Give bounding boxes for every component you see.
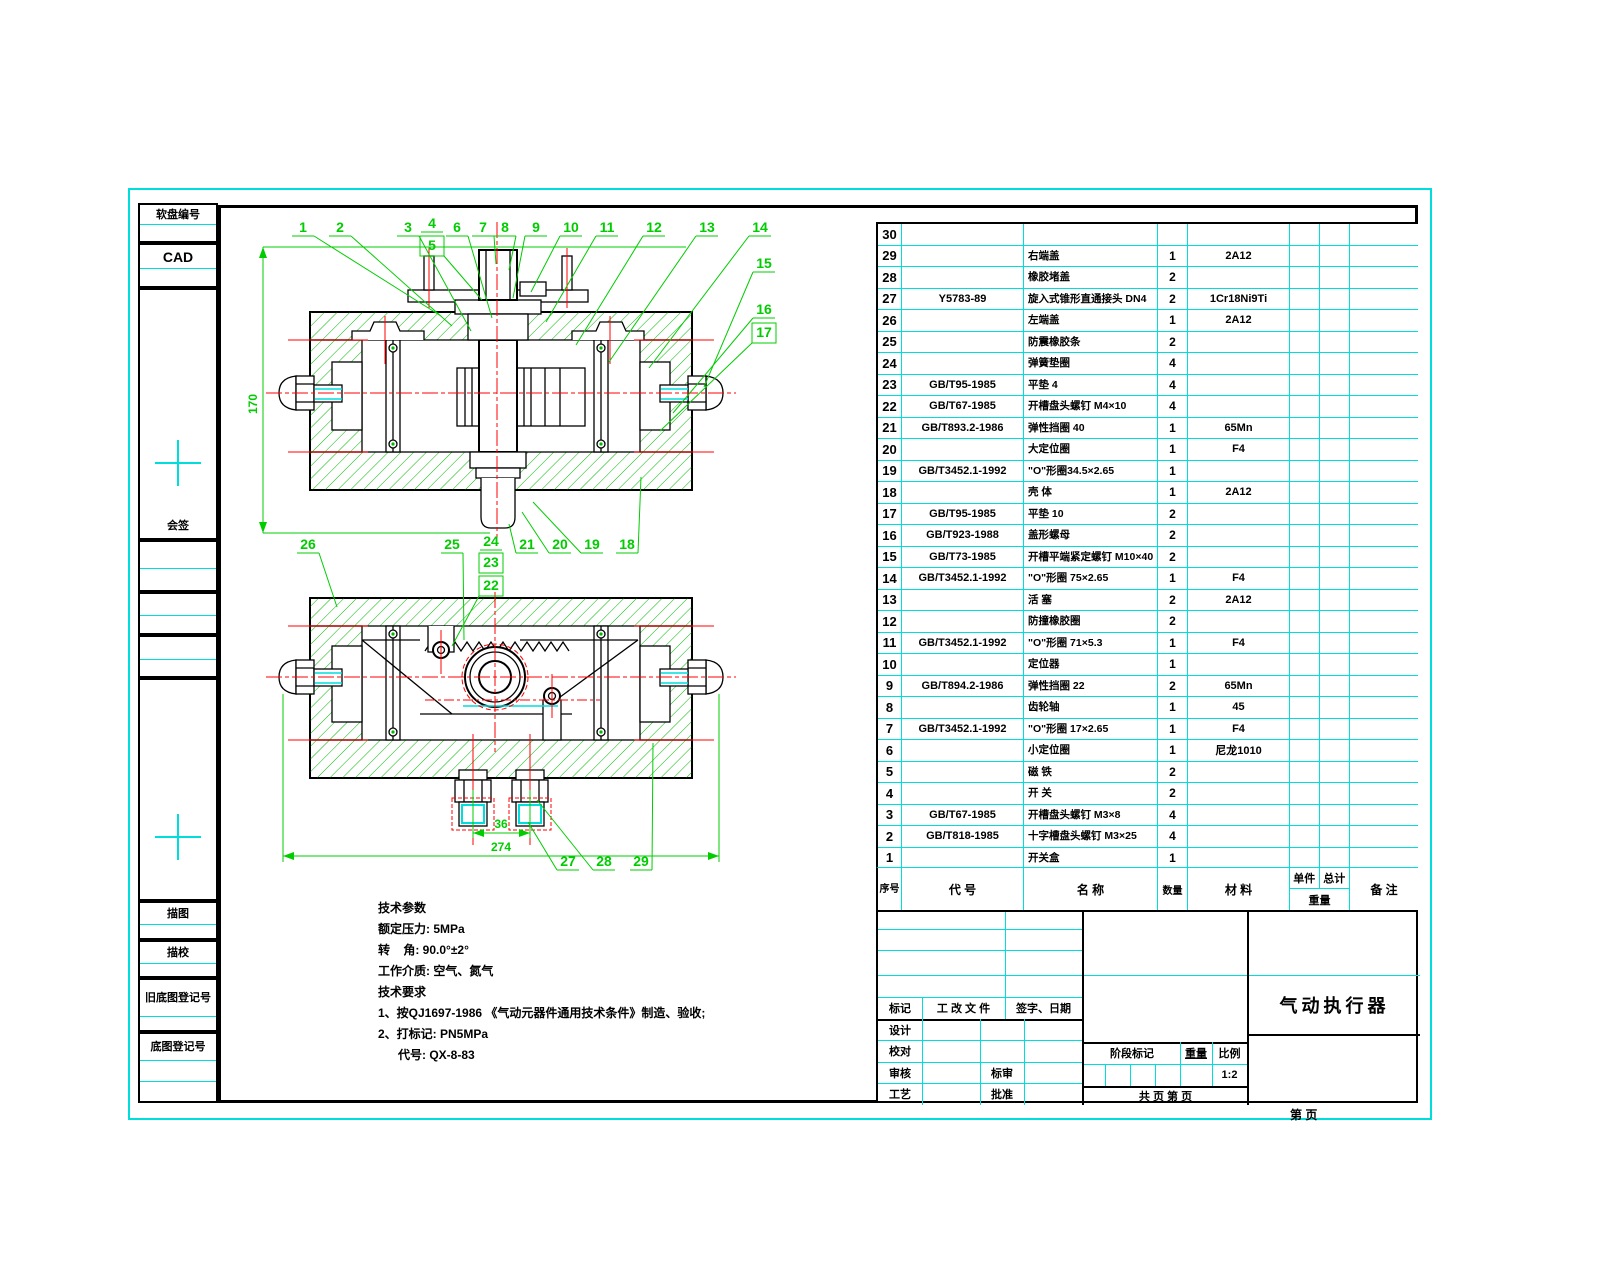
table-row: 21GB/T893.2-1986弹性挡圈 40165Mn <box>878 418 1418 440</box>
table-cell <box>902 332 1024 353</box>
callout-number: 19 <box>584 536 600 552</box>
table-cell <box>1350 590 1418 611</box>
weight-label: 重量 <box>1180 1042 1212 1064</box>
table-cell <box>1350 805 1418 826</box>
table-cell: 活 塞 <box>1024 590 1158 611</box>
table-cell <box>1320 547 1350 568</box>
table-cell <box>1350 246 1418 267</box>
callout-number: 20 <box>552 536 568 552</box>
role-review-label: 审核 <box>878 1062 922 1083</box>
table-cell <box>1188 353 1290 374</box>
scale-label: 比例 <box>1212 1042 1247 1064</box>
tech-param-line: 转 角: 90.0°±2° <box>378 940 688 961</box>
table-cell <box>1320 848 1350 869</box>
table-cell: 11 <box>878 633 902 654</box>
tech-req-line: 2、打标记: PN5MPa <box>378 1024 688 1045</box>
table-cell: GB/T3452.1-1992 <box>902 633 1024 654</box>
table-cell: 小定位圈 <box>1024 740 1158 761</box>
table-cell: 齿轮轴 <box>1024 697 1158 718</box>
table-row: 5磁 铁2 <box>878 762 1418 784</box>
table-cell: "O"形圈34.5×2.65 <box>1024 461 1158 482</box>
table-cell <box>902 590 1024 611</box>
table-cell <box>1350 332 1418 353</box>
table-cell <box>1350 826 1418 847</box>
stage-mark-label: 阶段标记 <box>1084 1042 1180 1064</box>
table-cell: 6 <box>878 740 902 761</box>
sidebar-box-tracing: 描图 <box>138 901 218 940</box>
table-cell: 壳 体 <box>1024 482 1158 503</box>
table-cell <box>1320 805 1350 826</box>
table-cell <box>1290 353 1320 374</box>
table-cell: 1 <box>1158 418 1188 439</box>
table-cell: GB/T67-1985 <box>902 805 1024 826</box>
callout-27: 27 <box>528 822 579 870</box>
table-cell <box>1320 762 1350 783</box>
table-row: 27Y5783-89旋入式锥形直通接头 DN421Cr18Ni9Ti <box>878 289 1418 311</box>
table-cell: 8 <box>878 697 902 718</box>
table-cell <box>1320 611 1350 632</box>
table-cell <box>1290 224 1320 245</box>
table-cell <box>902 482 1024 503</box>
table-cell: 2 <box>1158 289 1188 310</box>
sidebar-box-base-reg: 底图登记号 <box>138 1032 218 1103</box>
table-cell: 4 <box>1158 805 1188 826</box>
table-cell <box>1290 547 1320 568</box>
header-weight-total: 总计 <box>1320 868 1349 888</box>
table-cell <box>1188 224 1290 245</box>
table-cell: 1 <box>1158 697 1188 718</box>
table-cell: 大定位圈 <box>1024 439 1158 460</box>
callout-number: 28 <box>596 853 612 869</box>
callout-number: 16 <box>756 301 772 317</box>
table-cell <box>1290 246 1320 267</box>
table-cell <box>1290 375 1320 396</box>
table-cell <box>1290 654 1320 675</box>
table-cell <box>1350 396 1418 417</box>
callout-number: 2 <box>336 219 344 235</box>
sidebar-label: 会签 <box>140 518 216 534</box>
table-row: 13活 塞22A12 <box>878 590 1418 612</box>
table-cell <box>1290 396 1320 417</box>
callout-number: 24 <box>483 533 499 549</box>
table-cell: 橡胶堵盖 <box>1024 267 1158 288</box>
table-cell: 2 <box>1158 611 1188 632</box>
table-cell: 平垫 10 <box>1024 504 1158 525</box>
table-row: 19GB/T3452.1-1992"O"形圈34.5×2.651 <box>878 461 1418 483</box>
callout-number: 6 <box>453 219 461 235</box>
table-row: 24弹簧垫圈4 <box>878 353 1418 375</box>
table-cell: 26 <box>878 310 902 331</box>
table-cell <box>1320 267 1350 288</box>
table-cell: 2A12 <box>1188 246 1290 267</box>
table-cell <box>1320 461 1350 482</box>
table-cell: 2 <box>1158 762 1188 783</box>
register-cross-icon <box>177 814 179 860</box>
table-cell: 1 <box>1158 482 1188 503</box>
callout-21: 21 <box>509 524 538 553</box>
table-cell <box>1290 611 1320 632</box>
title-block: 标记 工 改 文 件 签字、日期 设计 校对 审核 工艺 标审 批准 阶段标记 … <box>876 910 1418 1103</box>
callout-number: 25 <box>444 536 460 552</box>
callout-number: 14 <box>752 219 768 235</box>
table-cell <box>1290 762 1320 783</box>
sidebar-box-old-base-reg: 旧底图登记号 <box>138 978 218 1032</box>
table-row: 9GB/T894.2-1986弹性挡圈 22265Mn <box>878 676 1418 698</box>
table-cell: 7 <box>878 719 902 740</box>
revision-doc-label: 工 改 文 件 <box>922 997 1005 1019</box>
table-cell <box>1290 697 1320 718</box>
table-cell <box>1350 762 1418 783</box>
callout-11: 11 <box>546 219 618 322</box>
table-cell: GB/T3452.1-1992 <box>902 568 1024 589</box>
table-cell: 平垫 4 <box>1024 375 1158 396</box>
table-cell <box>1290 310 1320 331</box>
table-cell <box>1188 461 1290 482</box>
header-remark: 备 注 <box>1350 868 1418 910</box>
callout-number: 17 <box>756 324 772 340</box>
table-cell <box>1320 246 1350 267</box>
table-cell <box>1188 848 1290 869</box>
table-cell: 65Mn <box>1188 676 1290 697</box>
table-cell: 2 <box>1158 332 1188 353</box>
table-cell: 2A12 <box>1188 310 1290 331</box>
table-row: 1开关盒1 <box>878 848 1418 870</box>
table-row: 6小定位圈1尼龙1010 <box>878 740 1418 762</box>
table-cell <box>1290 418 1320 439</box>
table-cell <box>1188 375 1290 396</box>
table-cell <box>1350 310 1418 331</box>
table-cell: 24 <box>878 353 902 374</box>
table-cell: 开 关 <box>1024 783 1158 804</box>
table-cell: 2 <box>1158 267 1188 288</box>
revision-sign-label: 签字、日期 <box>1005 997 1082 1019</box>
table-cell: 20 <box>878 439 902 460</box>
role-check-label: 校对 <box>878 1040 922 1062</box>
table-cell <box>902 267 1024 288</box>
table-cell <box>1320 418 1350 439</box>
tech-param-line: 额定压力: 5MPa <box>378 919 688 940</box>
table-cell <box>1290 332 1320 353</box>
table-cell: F4 <box>1188 568 1290 589</box>
table-cell <box>1320 826 1350 847</box>
table-row: 3GB/T67-1985开槽盘头螺钉 M3×84 <box>878 805 1418 827</box>
table-cell: 1 <box>1158 740 1188 761</box>
table-cell <box>1350 525 1418 546</box>
table-cell <box>902 353 1024 374</box>
table-cell: 65Mn <box>1188 418 1290 439</box>
table-cell <box>1188 805 1290 826</box>
callout-number: 27 <box>560 853 576 869</box>
callout-number: 8 <box>501 219 509 235</box>
sidebar-empty-cell <box>140 224 216 244</box>
table-cell: 开槽平端紧定螺钉 M10×40 <box>1024 547 1158 568</box>
table-row: 26左端盖12A12 <box>878 310 1418 332</box>
table-cell: 2A12 <box>1188 482 1290 503</box>
table-cell <box>902 224 1024 245</box>
table-cell <box>1290 719 1320 740</box>
table-cell: 4 <box>1158 353 1188 374</box>
header-weight-group: 单件 总计 重量 <box>1290 868 1350 910</box>
table-row: 23GB/T95-1985平垫 44 <box>878 375 1418 397</box>
table-cell <box>1290 525 1320 546</box>
table-cell: 16 <box>878 525 902 546</box>
table-cell <box>902 762 1024 783</box>
product-title: 气动执行器 <box>1249 975 1420 1034</box>
callout-number: 29 <box>633 853 649 869</box>
footer-page-label: 第 页 <box>1290 1106 1317 1123</box>
table-cell: GB/T95-1985 <box>902 375 1024 396</box>
sidebar-label: 描图 <box>140 903 216 924</box>
table-cell <box>902 740 1024 761</box>
callout-number: 15 <box>756 255 772 271</box>
table-cell: 1Cr18Ni9Ti <box>1188 289 1290 310</box>
table-cell <box>1320 289 1350 310</box>
callout-number: 4 <box>428 215 436 231</box>
table-row: 25防震橡胶条2 <box>878 332 1418 354</box>
table-cell: 盖形螺母 <box>1024 525 1158 546</box>
table-row: 16GB/T923-1988盖形螺母2 <box>878 525 1418 547</box>
header-material: 材 料 <box>1188 868 1290 910</box>
table-cell: 4 <box>1158 826 1188 847</box>
table-row: 14GB/T3452.1-1992"O"形圈 75×2.651F4 <box>878 568 1418 590</box>
dim-spacing-label: 36 <box>494 817 508 831</box>
table-cell <box>1320 224 1350 245</box>
table-cell <box>1188 762 1290 783</box>
callout-number: 23 <box>483 554 499 570</box>
callout-number: 26 <box>300 536 316 552</box>
table-cell <box>1290 783 1320 804</box>
table-row: 2GB/T818-1985十字槽盘头螺钉 M3×254 <box>878 826 1418 848</box>
table-cell: 1 <box>1158 310 1188 331</box>
table-cell: 4 <box>1158 375 1188 396</box>
table-cell <box>1290 676 1320 697</box>
table-cell: GB/T923-1988 <box>902 525 1024 546</box>
tech-req-line: 代号: QX-8-83 <box>378 1045 688 1066</box>
table-cell <box>1290 482 1320 503</box>
table-cell: 12 <box>878 611 902 632</box>
role-process-label: 工艺 <box>878 1083 922 1105</box>
parts-table-header: 序号 代 号 名 称 数量 材 料 单件 总计 重量 备 注 <box>876 867 1418 910</box>
table-cell <box>1290 461 1320 482</box>
table-cell <box>1350 719 1418 740</box>
table-cell: 23 <box>878 375 902 396</box>
table-row: 10定位器1 <box>878 654 1418 676</box>
table-cell: 1 <box>1158 848 1188 869</box>
table-cell <box>1320 310 1350 331</box>
table-cell: 15 <box>878 547 902 568</box>
table-cell: 右端盖 <box>1024 246 1158 267</box>
table-cell <box>1350 633 1418 654</box>
table-cell: 2 <box>1158 547 1188 568</box>
table-cell <box>1320 633 1350 654</box>
table-cell: GB/T73-1985 <box>902 547 1024 568</box>
table-cell: 十字槽盘头螺钉 M3×25 <box>1024 826 1158 847</box>
table-cell: 30 <box>878 224 902 245</box>
tech-req-line: 1、按QJ1697-1986 《气动元器件通用技术条件》制造、验收; <box>378 1003 688 1024</box>
table-cell: 防撞橡胶圈 <box>1024 611 1158 632</box>
table-cell <box>1350 848 1418 869</box>
table-cell <box>1320 482 1350 503</box>
table-cell: F4 <box>1188 719 1290 740</box>
table-cell <box>1350 482 1418 503</box>
table-row: 11GB/T3452.1-1992"O"形圈 71×5.31F4 <box>878 633 1418 655</box>
table-cell <box>1320 676 1350 697</box>
table-cell: 4 <box>1158 396 1188 417</box>
table-cell: 45 <box>1188 697 1290 718</box>
callout-number: 3 <box>404 219 412 235</box>
table-cell: 1 <box>1158 719 1188 740</box>
table-cell: Y5783-89 <box>902 289 1024 310</box>
parts-table: 3029右端盖12A1228橡胶堵盖227Y5783-89旋入式锥形直通接头 D… <box>876 222 1418 869</box>
table-cell <box>1320 332 1350 353</box>
callout-24: 24 <box>480 533 502 550</box>
scale-value: 1:2 <box>1212 1064 1247 1086</box>
table-cell <box>1290 633 1320 654</box>
table-cell <box>1320 439 1350 460</box>
table-cell: "O"形圈 71×5.3 <box>1024 633 1158 654</box>
table-row: 17GB/T95-1985平垫 102 <box>878 504 1418 526</box>
dim-overall-label: 274 <box>491 840 511 854</box>
table-cell <box>902 783 1024 804</box>
table-cell: 27 <box>878 289 902 310</box>
table-cell <box>1350 611 1418 632</box>
table-cell <box>1320 375 1350 396</box>
table-cell <box>1350 568 1418 589</box>
table-cell <box>902 611 1024 632</box>
table-cell: 2 <box>878 826 902 847</box>
role-design-label: 设计 <box>878 1019 922 1040</box>
callout-28: 28 <box>537 800 615 870</box>
callout-number: 12 <box>646 219 662 235</box>
table-cell <box>1024 224 1158 245</box>
table-cell <box>1320 783 1350 804</box>
table-cell: 旋入式锥形直通接头 DN4 <box>1024 289 1158 310</box>
table-cell: 5 <box>878 762 902 783</box>
table-cell <box>1350 740 1418 761</box>
table-cell: GB/T95-1985 <box>902 504 1024 525</box>
table-cell <box>1290 848 1320 869</box>
table-cell <box>1290 740 1320 761</box>
header-seq: 序号 <box>878 868 902 910</box>
table-cell <box>1350 547 1418 568</box>
table-cell <box>902 697 1024 718</box>
table-cell <box>1350 783 1418 804</box>
table-cell: 1 <box>1158 654 1188 675</box>
table-row: 20大定位圈1F4 <box>878 439 1418 461</box>
table-cell: 开槽盘头螺钉 M3×8 <box>1024 805 1158 826</box>
pages-line: 共 页 第 页 <box>1084 1086 1247 1105</box>
callout-number: 1 <box>299 219 307 235</box>
sidebar-label: CAD <box>140 245 216 268</box>
table-cell: 14 <box>878 568 902 589</box>
callout-number: 22 <box>483 577 499 593</box>
table-cell <box>902 246 1024 267</box>
callout-15: 15 <box>704 255 775 387</box>
table-cell: 1 <box>1158 633 1188 654</box>
callout-23: 23 <box>479 553 503 573</box>
callout-number: 13 <box>699 219 715 235</box>
header-code: 代 号 <box>902 868 1024 910</box>
header-name: 名 称 <box>1024 868 1158 910</box>
table-cell: F4 <box>1188 439 1290 460</box>
role-approve-label: 批准 <box>980 1083 1024 1105</box>
table-cell <box>1320 590 1350 611</box>
table-cell <box>1290 439 1320 460</box>
table-cell: 弹性挡圈 40 <box>1024 418 1158 439</box>
table-cell: GB/T3452.1-1992 <box>902 719 1024 740</box>
sidebar-tall-box <box>138 678 218 901</box>
table-cell <box>1320 396 1350 417</box>
table-cell: 防震橡胶条 <box>1024 332 1158 353</box>
table-cell: 2 <box>1158 590 1188 611</box>
table-cell <box>1350 697 1418 718</box>
register-cross-icon <box>177 440 179 486</box>
revision-mark-label: 标记 <box>878 997 922 1019</box>
sidebar-label: 底图登记号 <box>140 1034 216 1060</box>
table-cell <box>1350 375 1418 396</box>
table-row: 30 <box>878 224 1418 246</box>
table-cell <box>1320 719 1350 740</box>
table-cell <box>1320 697 1350 718</box>
header-weight-unit: 单件 <box>1290 868 1320 888</box>
table-row: 12防撞橡胶圈2 <box>878 611 1418 633</box>
table-row: 8齿轮轴145 <box>878 697 1418 719</box>
table-cell: 17 <box>878 504 902 525</box>
table-cell: "O"形圈 17×2.65 <box>1024 719 1158 740</box>
table-cell <box>1188 826 1290 847</box>
top-section-view <box>279 250 723 528</box>
table-cell: 弹性挡圈 22 <box>1024 676 1158 697</box>
table-cell: 磁 铁 <box>1024 762 1158 783</box>
table-cell <box>1188 396 1290 417</box>
sidebar-label: 描校 <box>140 942 216 963</box>
table-cell: 开槽盘头螺钉 M4×10 <box>1024 396 1158 417</box>
bottom-section-view <box>279 598 723 826</box>
table-cell: 10 <box>878 654 902 675</box>
table-cell <box>1350 654 1418 675</box>
table-cell <box>1188 525 1290 546</box>
table-cell <box>1320 654 1350 675</box>
parts-rows: 3029右端盖12A1228橡胶堵盖227Y5783-89旋入式锥形直通接头 D… <box>878 224 1418 869</box>
technical-notes: 技术参数 额定压力: 5MPa 转 角: 90.0°±2° 工作介质: 空气、氮… <box>378 898 688 1066</box>
table-cell <box>1158 224 1188 245</box>
table-cell <box>1320 740 1350 761</box>
sidebar-empty-cell <box>140 268 216 289</box>
table-cell <box>1320 504 1350 525</box>
table-cell: F4 <box>1188 633 1290 654</box>
callout-number: 10 <box>563 219 579 235</box>
table-row: 4开 关2 <box>878 783 1418 805</box>
table-cell <box>1290 504 1320 525</box>
callout-number: 11 <box>600 219 615 235</box>
table-cell <box>1350 461 1418 482</box>
table-cell: 左端盖 <box>1024 310 1158 331</box>
table-cell: 1 <box>1158 568 1188 589</box>
table-row: 29右端盖12A12 <box>878 246 1418 268</box>
table-cell <box>1350 439 1418 460</box>
table-cell <box>902 848 1024 869</box>
drawing-sheet: 软盘编号 CAD 会签 描图 描校 旧底图登记号 底图登记号 <box>0 0 1600 1280</box>
table-cell: 19 <box>878 461 902 482</box>
table-cell: 2 <box>1158 783 1188 804</box>
table-row: 15GB/T73-1985开槽平端紧定螺钉 M10×402 <box>878 547 1418 569</box>
role-standard-label: 标审 <box>980 1062 1024 1083</box>
sidebar-label: 旧底图登记号 <box>140 980 216 1016</box>
dim-height-label: 170 <box>246 394 260 414</box>
sidebar-empty-box <box>138 592 218 635</box>
sidebar-box-disk-number: 软盘编号 <box>138 203 218 243</box>
table-row: 18壳 体12A12 <box>878 482 1418 504</box>
